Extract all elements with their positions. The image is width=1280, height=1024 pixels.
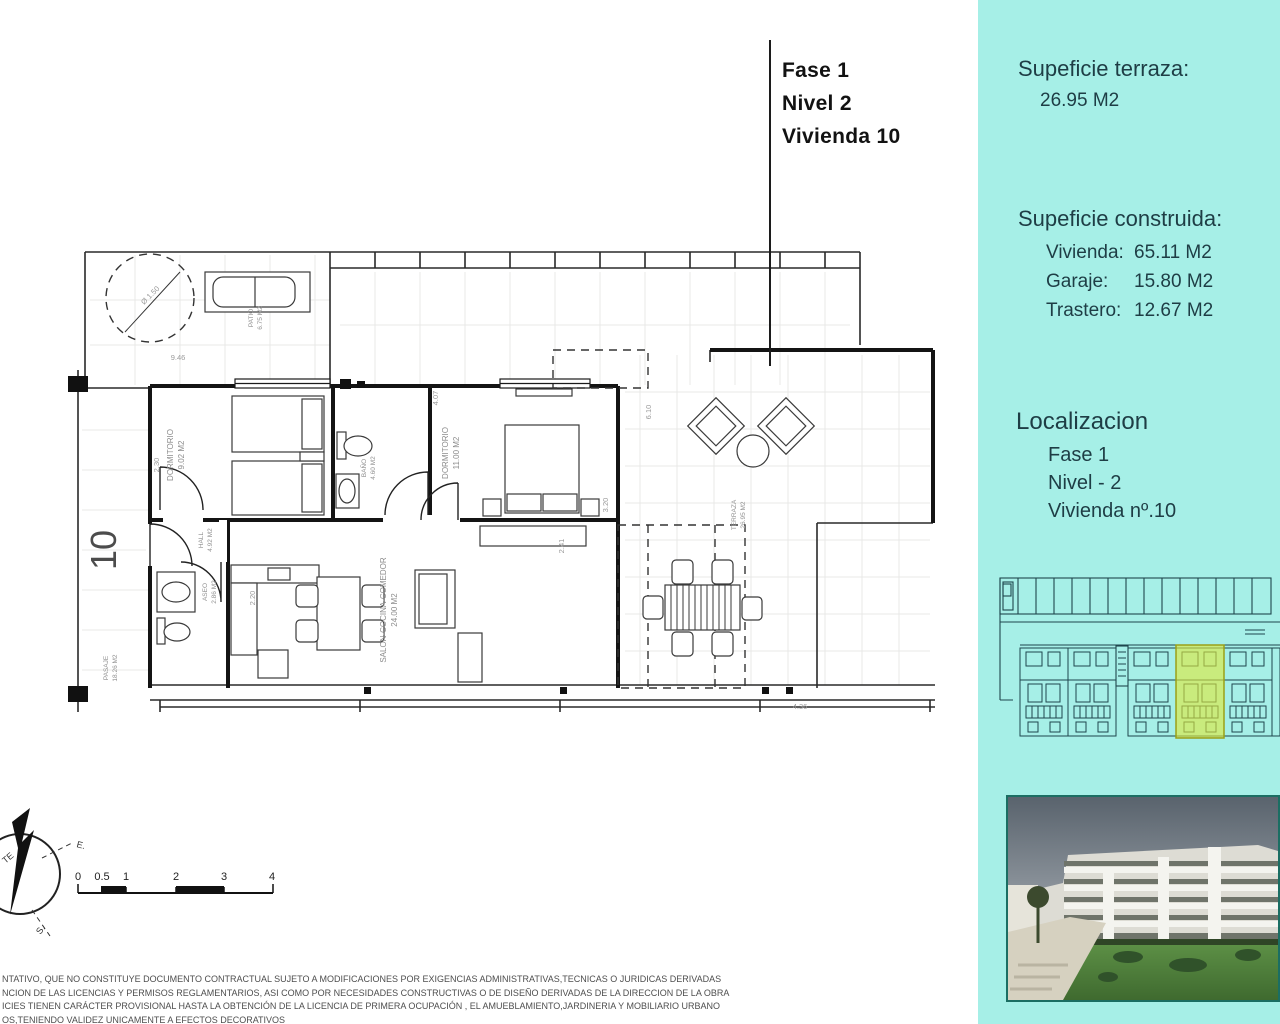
building-rendering [1006,795,1280,1002]
site-plan-units [1020,648,1280,736]
disclaimer-text: NTATIVO, QUE NO CONSTITUYE DOCUMENTO CON… [2,973,662,1024]
dim-label: 2.20 [248,591,257,606]
built-value: 12.67 M2 [1134,300,1213,322]
room-area: 11.00 M2 [452,436,461,469]
scale-label: 2 [173,871,179,883]
location-line: Vivienda nº.10 [1048,500,1176,523]
compass-icon: TE E. S. [0,808,86,936]
disclaimer-line: OS,TENIENDO VALIDEZ UNICAMENTE A EFECTOS… [2,1014,662,1024]
location-line: Fase 1 [1048,444,1109,467]
room-label: DORMITORIO [166,429,175,481]
room-label: PASAJE [103,655,110,680]
building-rendering-image [1008,797,1278,1000]
location-heading: Localizacion [1016,408,1148,436]
dim-label: 3.20 [601,498,610,513]
dim-label: 4.36 [793,702,808,711]
built-value: 65.11 M2 [1134,242,1212,264]
twin-beds-icon [232,396,324,515]
disclaimer-line: ICIES TIENEN CARÁCTER PROVISIONAL HASTA … [2,1000,662,1014]
built-row-garaje: Garaje: 15.80 M2 [1046,271,1213,293]
terrace-heading: Supeficie terraza: [1018,56,1189,82]
dim-label: 9.46 [171,353,186,362]
dim-label: 6.10 [644,405,653,420]
compass-north-label: TE [0,850,15,865]
title-phase: Fase 1 [782,54,900,87]
scale-label: 0.5 [94,871,109,883]
built-label: Vivienda: [1046,242,1134,264]
room-label: DORMITORIO [441,427,450,479]
built-row-vivienda: Vivienda: 65.11 M2 [1046,242,1212,264]
compass-south-label: S. [34,923,47,936]
room-area: 2.86 M2 [211,580,218,604]
aseo-sink-icon [157,572,195,612]
plan-title-block: Fase 1 Nivel 2 Vivienda 10 [782,54,900,153]
room-label: SALON-COCINA-COMEDOR [379,557,388,663]
scale-label: 0 [75,871,81,883]
room-area: 4.60 M2 [370,456,377,480]
highlighted-unit [1176,645,1224,738]
disclaimer-line: NTATIVO, QUE NO CONSTITUYE DOCUMENTO CON… [2,973,662,987]
room-label: PATIO [248,309,255,328]
floor-plan-drawing: DORMITORIO9.02 M2 BAÑO4.60 M2 DORMITORIO… [0,0,980,1024]
title-unit: Vivienda 10 [782,120,900,153]
dim-label: 4.07 [431,391,440,406]
toilet-icon [337,432,372,459]
sideboard-icon [480,526,586,546]
lounge-chair-icon [688,398,745,455]
built-label: Trastero: [1046,300,1134,322]
info-sidebar: Supeficie terraza: 26.95 M2 Supeficie co… [978,0,1280,1024]
room-label: BAÑO [359,459,368,477]
room-area: 26.95 M2 [740,501,747,528]
round-table-icon [737,435,769,467]
title-level: Nivel 2 [782,87,900,120]
car-icon [205,272,310,312]
room-label: ASEO [202,583,209,601]
built-heading: Supeficie construida: [1018,206,1222,232]
built-row-trastero: Trastero: 12.67 M2 [1046,300,1213,322]
scale-label: 4 [269,871,275,883]
room-label: HALL [198,531,205,548]
diameter-leader [125,272,180,332]
dim-label: 2.41 [557,539,566,554]
title-block-rule [769,40,771,366]
double-bed-icon [483,389,599,516]
door-openings [146,515,460,566]
room-area: 24.00 M2 [390,593,399,627]
built-label: Garaje: [1046,271,1134,293]
sofa-icon [458,633,482,682]
disclaimer-line: NCION DE LAS LICENCIAS Y PERMISOS REGLAM… [2,987,662,1001]
built-value: 15.80 M2 [1134,271,1213,293]
scale-label: 3 [221,871,227,883]
furniture [157,272,814,682]
compass-east-label: E. [76,839,87,851]
room-label: TERRAZA [731,499,738,530]
armchair-cushion [419,574,447,624]
aseo-toilet-icon [157,618,190,644]
dining-table-icon [296,577,384,650]
terrace-value: 26.95 M2 [1040,90,1119,112]
bath-vanity-icon [336,474,359,508]
unit-number: 10 [83,530,124,570]
room-area: 9.02 M2 [177,440,186,469]
room-area: 6.75 M2 [257,306,264,330]
scale-bar: 0 0.5 1 2 3 4 [75,871,275,893]
plan-sheet: DORMITORIO9.02 M2 BAÑO4.60 M2 DORMITORIO… [0,0,1280,1024]
outdoor-table-icon [643,560,762,656]
scale-label: 1 [123,871,129,883]
room-area: 18.26 M2 [112,654,119,681]
location-line: Nivel - 2 [1048,472,1121,495]
site-plan-map [995,560,1280,750]
room-area: 4.92 M2 [207,528,214,552]
dim-label: 2.30 [152,458,161,473]
